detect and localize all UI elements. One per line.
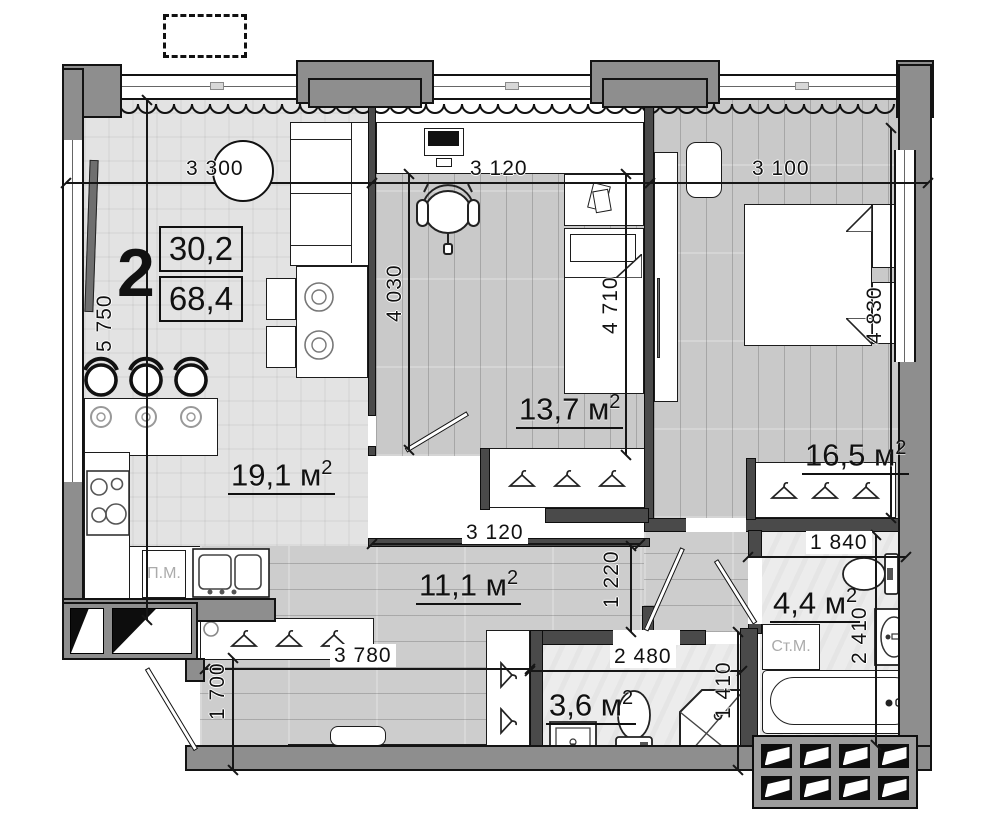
- floor-plan: П.М.: [0, 0, 1000, 833]
- dim-line: [408, 174, 410, 450]
- room-label-bath-small: 3,6 м2: [546, 688, 636, 725]
- window-mullion: [795, 82, 809, 90]
- dining-chair: [266, 326, 296, 368]
- entry-block-panel: [70, 608, 104, 654]
- window-band: [84, 74, 898, 100]
- window-mullion: [505, 82, 519, 90]
- partition-stub: [368, 446, 376, 456]
- dim-text: 3 120: [462, 521, 528, 544]
- dim-line: [875, 535, 877, 745]
- ventilation-block: [752, 735, 918, 809]
- curtain-wave: [84, 102, 898, 118]
- entry-block-panel: [112, 608, 192, 654]
- stool-ghost: [178, 404, 204, 430]
- wall-pier: [602, 78, 708, 108]
- plate: [302, 280, 336, 314]
- bath-small-west-wall: [530, 630, 543, 764]
- dim-text: 1 840: [806, 531, 872, 554]
- desk-tray: [436, 158, 452, 167]
- desk-laptop: [424, 128, 464, 156]
- wardrobe-stub: [480, 448, 490, 510]
- dim-text: 3 300: [186, 158, 244, 179]
- room-label-master: 16,5 м2: [802, 438, 909, 475]
- vent-cell: [761, 776, 792, 800]
- dim-text: 1 410: [713, 661, 734, 719]
- dim-text: 3 100: [752, 158, 810, 179]
- dim-text: 4 030: [384, 264, 405, 322]
- dim-text: 4 710: [600, 276, 621, 334]
- washing-machine-label: Ст.М.: [771, 638, 810, 656]
- vent-cell: [878, 744, 909, 768]
- dim-text: 3 780: [330, 644, 396, 667]
- bench-cushion: [330, 726, 386, 746]
- window-left: [62, 140, 84, 482]
- dishwasher-label: П.М.: [147, 565, 181, 583]
- pouf: [686, 142, 722, 198]
- partition-wall: [644, 100, 654, 520]
- dim-text: 3 120: [470, 158, 528, 179]
- dim-line: [625, 174, 627, 455]
- dim-text: 1 700: [207, 662, 228, 720]
- hanger-icons: [492, 466, 642, 492]
- office-chair: [414, 178, 482, 258]
- door-opening: [613, 630, 680, 645]
- cooktop: [86, 470, 130, 536]
- dim-text: 1 220: [601, 550, 622, 608]
- wardrobe-band: [545, 508, 649, 523]
- vent-cell: [878, 776, 909, 800]
- cabinet-strip: [654, 152, 678, 402]
- vent-cell: [839, 776, 870, 800]
- dishwasher: П.М.: [142, 550, 186, 598]
- room-label-hall: 11,1 м2: [416, 568, 521, 605]
- curtain-blade: [657, 278, 660, 358]
- vent-cell: [800, 744, 831, 768]
- dining-chair: [266, 278, 296, 320]
- hanger-icons: [492, 640, 524, 756]
- room-label-bath-large: 4,4 м2: [770, 586, 860, 623]
- vent-cell: [800, 776, 831, 800]
- hanger-icons: [758, 478, 892, 504]
- window-mullion: [210, 82, 224, 90]
- dim-line: [530, 670, 742, 672]
- bar-stool: [80, 352, 122, 400]
- closet-knob: [202, 620, 220, 638]
- dim-text: 2 480: [610, 645, 676, 668]
- title-block: 2 30,2 68,4: [117, 226, 243, 322]
- blanket-fold: [846, 206, 872, 232]
- wall-pier: [308, 78, 422, 108]
- kitchen-sink: [192, 548, 270, 598]
- rooms-count: 2: [117, 243, 155, 304]
- living-area-value: 30,2: [159, 226, 243, 272]
- dim-line: [737, 632, 739, 770]
- dim-line: [748, 556, 906, 558]
- wardrobe-stub: [746, 458, 756, 520]
- door-opening: [686, 518, 746, 532]
- plate: [302, 328, 336, 362]
- stool-ghost: [88, 404, 114, 430]
- room-label-living: 19,1 м2: [228, 458, 335, 495]
- room-label-study: 13,7 м2: [516, 392, 623, 429]
- dim-text: 4 830: [864, 286, 885, 344]
- washing-machine: Ст.М.: [762, 624, 820, 670]
- dim-line: [630, 546, 632, 632]
- vent-cell: [761, 744, 792, 768]
- partition-wall: [368, 100, 376, 416]
- blanket-fold: [616, 254, 642, 278]
- dim-text: 5 750: [94, 294, 115, 352]
- dim-line: [146, 100, 148, 620]
- floor-corridor: [644, 532, 760, 632]
- dim-line: [650, 182, 928, 184]
- vent-cell: [839, 744, 870, 768]
- sofa: [290, 122, 370, 266]
- total-area-value: 68,4: [159, 276, 243, 322]
- dim-line: [232, 658, 234, 770]
- dim-line: [372, 182, 650, 184]
- dim-line: [205, 668, 530, 670]
- dashed-outline: [163, 14, 247, 58]
- bar-stool: [170, 352, 212, 400]
